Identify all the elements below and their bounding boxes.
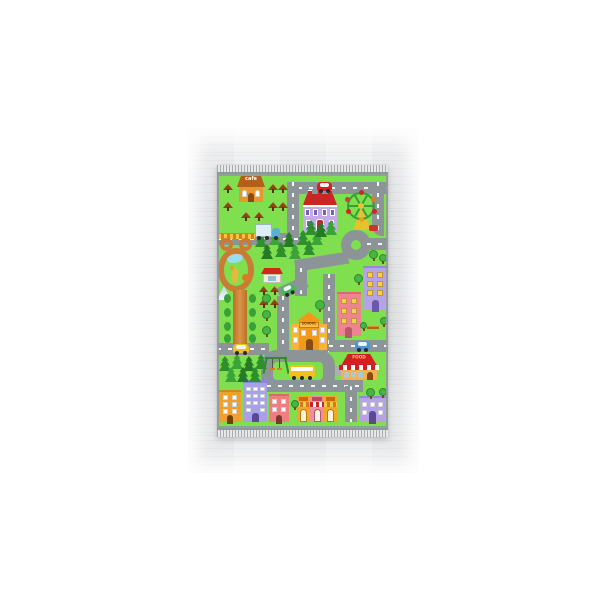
apartment-window (367, 281, 373, 287)
building-window (253, 387, 258, 391)
food-door (367, 372, 373, 380)
round-tree-icon (379, 388, 387, 396)
ferris-gondola (371, 197, 376, 202)
building-door (252, 413, 259, 422)
salmon-building (269, 394, 289, 422)
round-tree-icon (380, 317, 388, 325)
building-window (378, 402, 383, 407)
taxi (233, 344, 249, 353)
apartment-window (367, 272, 373, 278)
ferris-gondola (345, 197, 350, 202)
mansion-window (322, 209, 327, 216)
building-door (276, 415, 282, 424)
building-door (227, 415, 233, 424)
cafe-door (248, 193, 254, 202)
building-window (246, 408, 251, 412)
red-car (317, 182, 332, 191)
play-rug: cafe (217, 165, 388, 437)
pine-tree-icon (219, 356, 231, 371)
shop-sign (326, 397, 335, 401)
building-window (272, 407, 277, 412)
cafe-table-icon (268, 202, 278, 212)
path-tree-icon (224, 322, 231, 331)
swing-seat (270, 368, 275, 370)
shop-front (297, 396, 310, 422)
apartment-window (351, 308, 357, 314)
blue-truck (255, 224, 281, 242)
building-window (232, 395, 237, 400)
round-tree-icon (262, 294, 271, 303)
building-window (370, 402, 375, 407)
truck-wheel (274, 236, 278, 240)
rug-city-map: cafe (217, 174, 388, 428)
building-door (369, 411, 376, 424)
zoo-orange-path (233, 290, 247, 344)
building-window (223, 409, 228, 414)
cafe-table-icon (270, 299, 279, 308)
zoo-giraffe-head (230, 266, 234, 270)
round-tree-icon (354, 274, 363, 283)
school-window (320, 327, 325, 333)
building-window (260, 408, 265, 412)
building-window (378, 410, 383, 415)
shop-arch-window (327, 409, 334, 422)
round-tree-icon (369, 250, 378, 259)
mansion-roof (303, 194, 337, 205)
swing-rope (279, 359, 280, 368)
apartment-window (341, 298, 347, 304)
round-tree-icon (315, 300, 325, 310)
round-tree-icon (262, 326, 271, 335)
apartment-door (345, 327, 352, 338)
apartment-window (377, 281, 383, 287)
building-window (223, 395, 228, 400)
bus-wheel (308, 376, 312, 380)
cafe-table-icon (278, 184, 288, 194)
cafe-window (242, 190, 247, 197)
school-window (301, 330, 306, 336)
round-tree-icon (291, 400, 299, 408)
cafe-table-icon (270, 286, 279, 295)
pine-tree-icon (243, 356, 255, 371)
building-window (281, 407, 286, 412)
building-window (223, 402, 228, 407)
lavender-building (359, 396, 386, 422)
building-window (362, 410, 367, 415)
truck-wheel (265, 236, 269, 240)
shop-front (310, 396, 324, 422)
swing-seat (277, 368, 282, 370)
food-window (351, 372, 356, 378)
food-window (344, 372, 349, 378)
ferris-gondola (372, 209, 377, 214)
shop-sign (312, 397, 322, 401)
road-roundabout-east (367, 238, 388, 250)
building-window (232, 402, 237, 407)
path-tree-icon (249, 334, 256, 343)
apartment-window (367, 290, 373, 296)
shop-front (324, 396, 337, 422)
food-restaurant: FOOD (339, 354, 379, 380)
cafe-table-icon (278, 202, 288, 212)
shop-arch-window (300, 409, 307, 422)
swing-set (265, 355, 287, 375)
shop-awning (324, 402, 337, 407)
shop-sign (299, 397, 308, 401)
truck-wheel (257, 236, 261, 240)
building-window (246, 387, 251, 391)
ferris-gondola (346, 209, 351, 214)
school-window (312, 330, 317, 336)
pine-tree-icon (231, 354, 243, 369)
apartment-window (351, 318, 357, 324)
apartment-window (377, 272, 383, 278)
shop-arch-window (314, 409, 321, 422)
building-window (246, 401, 251, 405)
building-window (281, 399, 286, 404)
apartment-window (351, 298, 357, 304)
food-window (358, 372, 363, 378)
cafe-table-icon (241, 212, 251, 222)
school-window (293, 327, 298, 333)
bus-wheel (300, 376, 304, 380)
path-tree-icon (249, 322, 256, 331)
apartment-window (341, 308, 347, 314)
product-photo-canvas: cafe (0, 0, 604, 604)
round-tree-icon (360, 322, 367, 329)
school-bus (289, 365, 315, 378)
blue-car (355, 341, 370, 350)
pink-apartment (337, 292, 361, 336)
purple-apartment (363, 266, 387, 310)
cafe-table-icon (223, 184, 233, 194)
mansion-window (330, 209, 335, 216)
building-window (253, 401, 258, 405)
path-tree-icon (224, 334, 231, 343)
bench (367, 326, 379, 329)
apartment-window (377, 290, 383, 296)
road-bottom-vertical (345, 386, 357, 422)
kiosk-building (261, 268, 283, 283)
path-tree-icon (224, 308, 231, 317)
school-door (306, 339, 313, 350)
cafe-table-icon (254, 212, 264, 222)
swing-rope (272, 359, 273, 368)
school-window (293, 337, 298, 343)
school-building: SCHOOL (291, 312, 327, 350)
ferris-gondola (359, 190, 364, 195)
path-tree-icon (249, 294, 256, 303)
ferris-wheel (345, 192, 379, 232)
rug-fringe-bottom (217, 428, 388, 437)
ferris-hub (358, 203, 364, 209)
mansion-window (313, 209, 318, 216)
cafe-table-icon (268, 184, 278, 194)
round-tree-icon (379, 254, 387, 262)
shop-awning (310, 402, 324, 407)
cafe-sign-label: cafe (245, 176, 257, 182)
building-window (260, 387, 265, 391)
truck-box (255, 224, 272, 237)
bus-windows (291, 367, 313, 371)
bus-wheel (292, 376, 296, 380)
cafe-building: cafe (237, 176, 265, 202)
school-sign-label: SCHOOL (302, 322, 317, 326)
school-pediment (297, 312, 321, 321)
ferris-cart (369, 225, 378, 231)
orange-building (219, 390, 241, 422)
building-window (362, 402, 367, 407)
wood-floor-photo: cafe (188, 128, 419, 473)
building-window (260, 394, 265, 398)
path-tree-icon (249, 308, 256, 317)
building-window (260, 401, 265, 405)
ferris-gondola (359, 217, 364, 222)
building-window (272, 399, 277, 404)
rug-fringe-top (217, 165, 388, 174)
apartment-door (372, 300, 379, 312)
building-window (232, 409, 237, 414)
kiosk-window (268, 276, 276, 281)
cafe-window (255, 190, 260, 197)
round-tree-icon (262, 310, 271, 319)
path-tree-icon (224, 294, 231, 303)
cafe-table-icon (223, 202, 233, 212)
round-tree-icon (366, 388, 375, 397)
building-window (253, 394, 258, 398)
shop-row (297, 396, 337, 422)
school-window (320, 337, 325, 343)
zoo-animal (242, 274, 249, 281)
mansion-window (305, 209, 310, 216)
periwinkle-building (243, 380, 267, 422)
building-window (246, 394, 251, 398)
food-sign-label: FOOD (352, 355, 365, 360)
apartment-window (341, 318, 347, 324)
